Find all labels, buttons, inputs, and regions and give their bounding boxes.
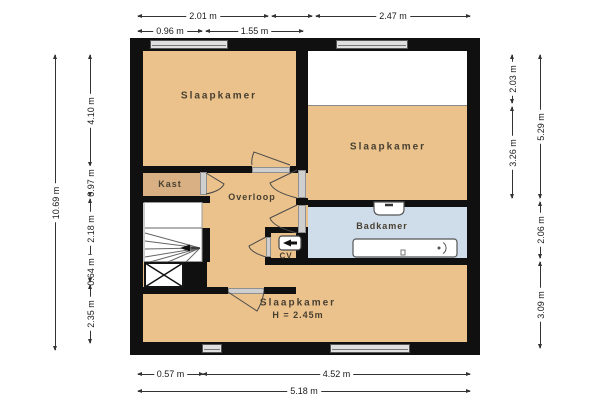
- room-label-bedroom-right: Slaapkamer: [350, 142, 426, 153]
- dim-right-309: 3.09 m: [535, 262, 546, 348]
- dim-left-097: 0.97 m: [85, 169, 96, 196]
- dim-left-235: 2.35 m: [85, 285, 96, 343]
- room-label-kast: Kast: [158, 179, 182, 189]
- door-arc-bedroom1: [252, 152, 290, 165]
- dim-left-218: 2.18 m: [85, 199, 96, 258]
- room-height-note: H = 2.45m: [272, 310, 323, 320]
- dim-right-203: 2.03 m: [507, 55, 518, 103]
- floorplan-canvas: Slaapkamer Slaapkamer Kast Overloop Badk…: [0, 0, 600, 400]
- cv-boiler-icon: [279, 236, 301, 250]
- dim-left-410: 4.10 m: [85, 55, 96, 166]
- room-label-badkamer: Badkamer: [356, 221, 408, 231]
- void-cross-icon: [145, 263, 183, 287]
- dim-bottom-452: 4.52 m: [203, 369, 470, 380]
- room-label-bedroom-bottom: Slaapkamer: [260, 298, 336, 309]
- room-label-bedroom-top-left: Slaapkamer: [181, 91, 257, 102]
- dim-right-529: 5.29 m: [535, 55, 546, 198]
- door-arc-cv: [249, 237, 266, 257]
- bathtub-icon: [353, 239, 457, 257]
- dim-left-total-1069: 10.69 m: [50, 55, 61, 350]
- dim-top-155: 1.55 m: [206, 26, 303, 37]
- staircase-icon: [144, 203, 202, 263]
- dim-bottom-057: 0.57 m: [138, 369, 203, 380]
- sink-icon: [374, 202, 404, 215]
- dim-top-201: 2.01 m: [138, 11, 268, 22]
- door-arc-badkamer: [270, 205, 297, 233]
- dim-left-064: 0.64 m: [85, 261, 96, 282]
- dim-right-206: 2.06 m: [535, 202, 546, 258]
- room-label-cv: CV: [279, 252, 292, 261]
- dim-top-096: 0.96 m: [138, 26, 202, 37]
- room-label-overloop: Overloop: [228, 192, 276, 202]
- dim-bottom-518: 5.18 m: [138, 386, 470, 397]
- dim-top-small-unlabeled: [272, 11, 312, 22]
- door-arc-kast: [206, 173, 224, 194]
- dim-right-326: 3.26 m: [507, 107, 518, 198]
- dim-top-247: 2.47 m: [316, 11, 470, 22]
- door-arc-bedroom-bottom: [228, 292, 264, 311]
